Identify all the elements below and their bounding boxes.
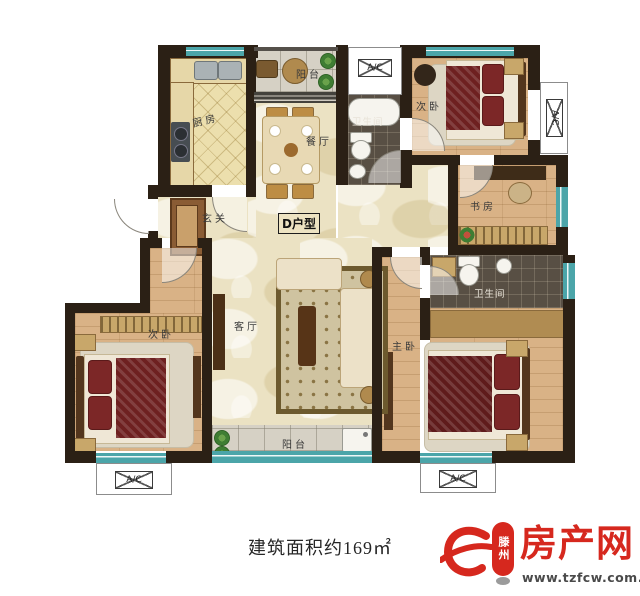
pillow (88, 396, 112, 430)
balcony-bottom-label: 阳台 (282, 436, 308, 451)
nightstand (506, 340, 528, 357)
pillow (494, 354, 520, 390)
ac-unit-label: A/C (358, 59, 392, 77)
balcony-top-rail (254, 92, 336, 103)
bedroom-tr-blanket (446, 66, 480, 130)
balcony-top-edge (254, 47, 338, 51)
master-wardrobe (430, 310, 565, 338)
wall-segment (246, 185, 256, 197)
dining-table (262, 116, 320, 184)
wall-segment (65, 451, 96, 463)
toilet-bowl (351, 140, 371, 160)
plate (269, 163, 281, 175)
nightstand (504, 58, 524, 75)
wall-segment (148, 185, 158, 199)
pillow (482, 64, 504, 94)
wall-segment (528, 45, 540, 90)
washing-machine (342, 428, 372, 452)
stove-burner (174, 144, 188, 158)
master-bedroom-label: 主卧 (392, 338, 418, 353)
nightstand (506, 434, 528, 451)
wall-segment (556, 165, 568, 187)
wall-segment (198, 238, 210, 248)
wall-segment (563, 255, 575, 263)
plate (301, 163, 313, 175)
dining-chair (292, 184, 314, 199)
logo-dot (496, 577, 510, 585)
balcony-basket (256, 60, 278, 78)
wall-segment (372, 451, 420, 463)
wall-segment (158, 45, 170, 197)
wall-segment (166, 451, 210, 463)
bedroom-bl-headboard (76, 356, 84, 440)
window-strip (563, 263, 575, 299)
bedroom-bottom-left-label: 次卧 (148, 326, 174, 341)
wall-segment (563, 299, 575, 463)
ac-unit-label: A/C (115, 471, 153, 489)
ac-text: A/C (550, 110, 560, 125)
wall-segment (448, 165, 458, 255)
wall-segment (372, 255, 382, 463)
wall-segment (65, 303, 150, 313)
wall-segment (336, 45, 348, 185)
kitchen-sink-2 (218, 61, 242, 80)
ac-text: A/C (126, 475, 141, 485)
pillow (482, 96, 504, 126)
window-strip (420, 453, 492, 463)
wall-segment (492, 451, 575, 463)
foyer-rug-inner (176, 205, 198, 247)
window-strip (556, 187, 568, 227)
unit-type-badge: D户型 (278, 213, 320, 234)
logo-url-text[interactable]: www.tzfcw.com.cn (522, 570, 640, 585)
sofa-chaise (276, 258, 342, 290)
balcony-top-label: 阳台 (296, 66, 322, 81)
window-strip (186, 47, 244, 56)
bedroom-tr-planter (414, 64, 436, 86)
pillow (88, 360, 112, 394)
wall-segment (494, 155, 568, 165)
logo-brand-text: 房产网 (520, 520, 634, 568)
foyer-label: 玄关 (202, 210, 228, 225)
unit-type-text: D户型 (282, 215, 316, 232)
bath-top-label: 卫生间 (352, 114, 384, 128)
floorplan-canvas: A/C A/C A/C A/C 阳台 厨房 餐厅 卫生间 次卧 书房 玄关 次卧… (0, 0, 640, 596)
site-logo: 滕州 房产网 www.tzfcw.com.cn (440, 520, 638, 592)
living-label: 客厅 (234, 318, 260, 333)
wall-segment (448, 245, 568, 255)
coffee-table (298, 306, 316, 366)
wall-segment (148, 231, 158, 248)
entry-door-arc (114, 199, 149, 234)
ac-text: A/C (450, 474, 465, 484)
flower-icon (459, 227, 475, 243)
stove-burner (174, 127, 188, 141)
study-chair (508, 182, 532, 204)
dining-label: 餐厅 (306, 133, 332, 148)
wall-segment (420, 298, 430, 340)
logo-city-badge: 滕州 (492, 522, 514, 576)
plant-icon (214, 430, 230, 446)
plate (269, 125, 281, 137)
dining-chair (266, 184, 288, 199)
ac-unit-label: A/C (546, 99, 563, 137)
study-label: 书房 (470, 198, 496, 213)
nightstand (504, 122, 524, 139)
washer-knob (363, 432, 368, 437)
wall-segment (140, 238, 150, 313)
wall-segment (400, 150, 412, 188)
pillow (494, 394, 520, 430)
stove-icon (171, 122, 190, 162)
wall-segment (65, 303, 75, 463)
wall-segment (158, 185, 212, 197)
nightstand (74, 334, 96, 351)
bedroom-bl-blanket (116, 358, 166, 438)
ac-text: A/C (367, 63, 382, 73)
pendant-lamp (496, 258, 512, 274)
centerpiece (284, 143, 298, 157)
bath-master-label: 卫生间 (474, 286, 506, 300)
logo-swoosh-icon (440, 522, 492, 584)
plant-icon (320, 53, 336, 69)
bath-sink (349, 164, 366, 179)
balcony-window-band (212, 451, 372, 463)
wall-segment (246, 53, 256, 197)
master-headboard (522, 348, 530, 440)
master-blanket (428, 356, 492, 432)
kitchen-sink (194, 61, 218, 80)
window-strip (426, 47, 514, 56)
sofa (340, 288, 376, 388)
bedroom-bl-tv-cabinet (193, 356, 201, 418)
living-tv-cabinet (213, 294, 225, 370)
ac-unit-label: A/C (439, 470, 477, 488)
bedroom-top-right-label: 次卧 (416, 98, 442, 113)
window-strip (96, 453, 166, 463)
wall-segment (412, 155, 460, 165)
wall-segment (202, 238, 212, 463)
toilet-bowl (459, 264, 479, 286)
